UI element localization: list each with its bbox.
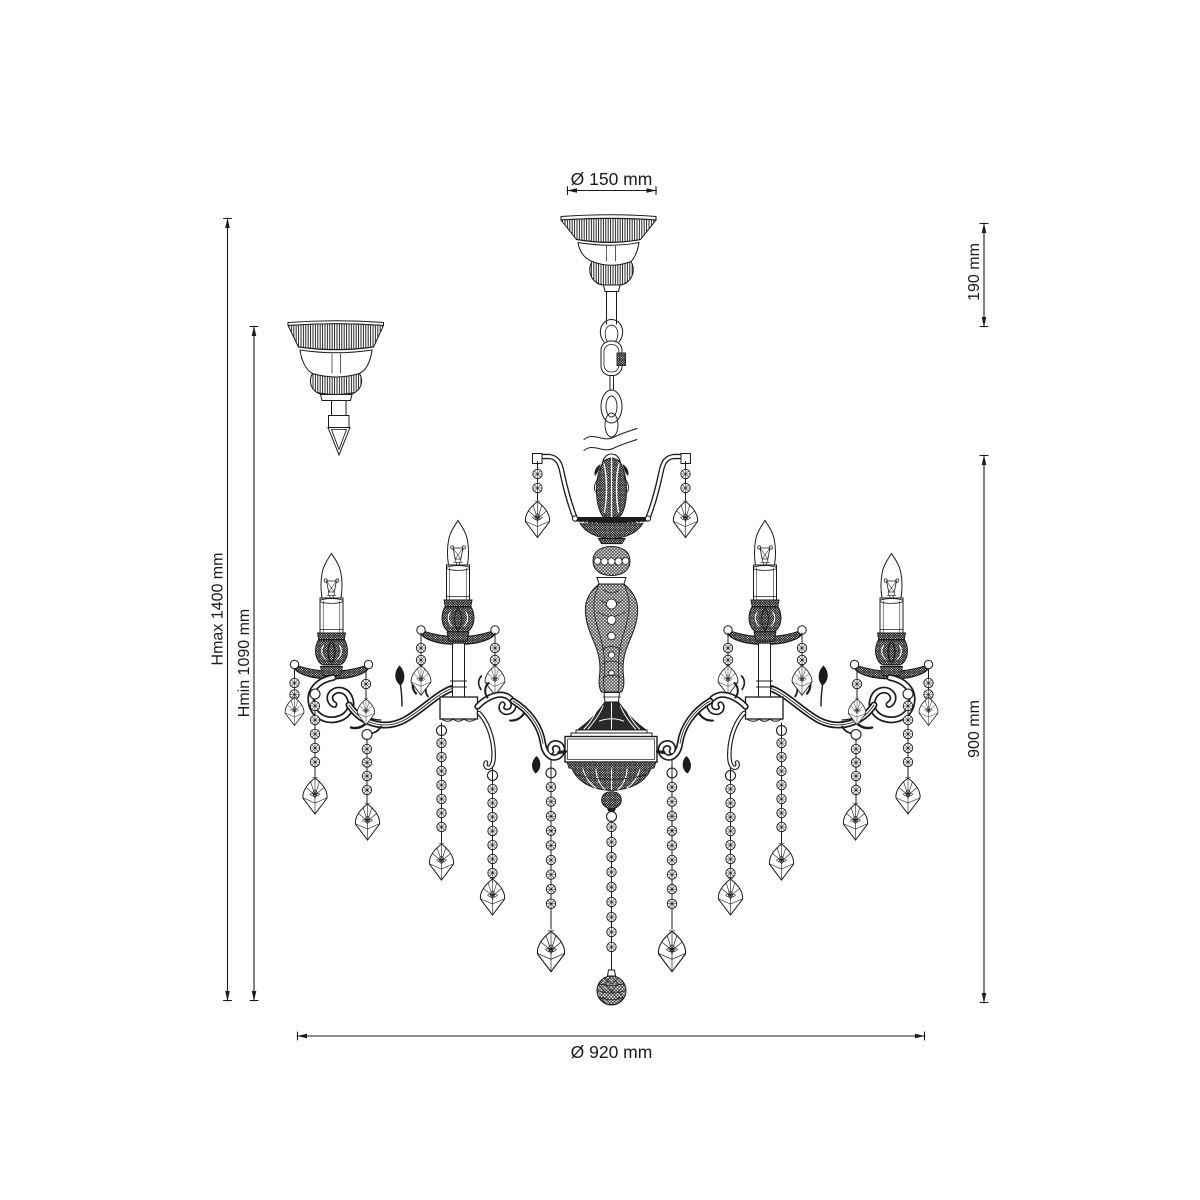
- svg-text:900 mm: 900 mm: [966, 700, 983, 758]
- svg-text:Ø 150 mm: Ø 150 mm: [571, 169, 653, 189]
- svg-text:Hmax 1400 mm: Hmax 1400 mm: [210, 553, 227, 666]
- svg-text:Ø 920 mm: Ø 920 mm: [571, 1042, 653, 1062]
- svg-text:190 mm: 190 mm: [966, 243, 983, 301]
- svg-text:Hmin 1090 mm: Hmin 1090 mm: [236, 609, 253, 717]
